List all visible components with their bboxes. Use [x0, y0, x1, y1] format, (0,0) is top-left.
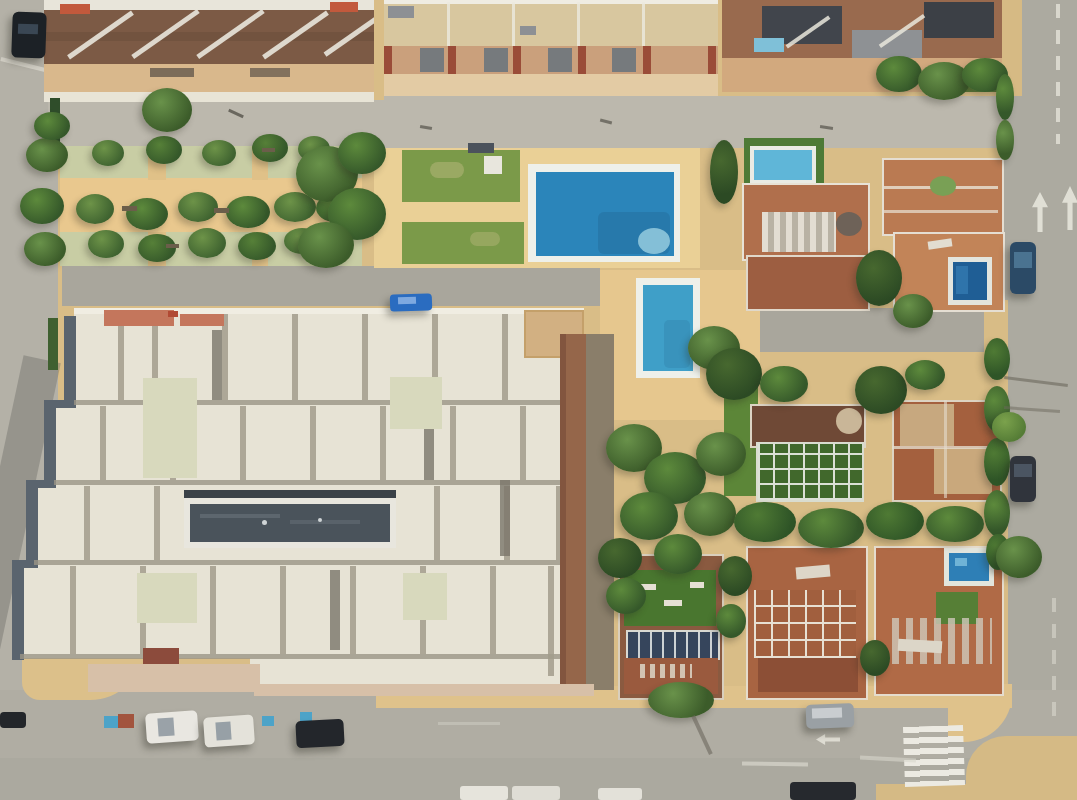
complex-front-sidewalk-right	[254, 684, 594, 696]
villa1-roof-lower	[746, 255, 870, 311]
villa3-white-arch	[836, 408, 862, 434]
villa1-west-trees	[710, 140, 738, 204]
block-b-brick-1	[384, 46, 392, 74]
villa2-pool-light	[956, 266, 968, 294]
block-b-glass-1	[420, 48, 444, 72]
deck-pool-shed	[484, 156, 502, 174]
car-dark-right	[1010, 456, 1036, 502]
garden-tree-mid-2	[126, 198, 168, 230]
row2-bottom-hedge-3	[866, 502, 924, 540]
block-b-ac-unit-1	[388, 6, 414, 18]
right-road-center-dash-top	[1056, 4, 1060, 144]
row3-tree-5	[860, 640, 890, 676]
block-b-lower-terrace	[384, 74, 718, 96]
roof-block-shadow-3	[330, 570, 340, 650]
block-a-terrace-window-2	[250, 68, 290, 77]
roof-seam-v-d3	[210, 566, 216, 654]
villa7-pool-sparkle	[955, 558, 967, 566]
villa5-sunbeds	[640, 664, 692, 678]
roof-seam-v-d1	[70, 566, 76, 654]
walkway-palm-6	[654, 534, 702, 574]
roof-seam-v-a1	[118, 314, 124, 400]
right-hedge-1	[984, 338, 1010, 380]
main-pool-steps	[638, 228, 670, 254]
top-road	[48, 96, 1010, 148]
block-b-brick-6	[708, 46, 716, 74]
villa4-rail-v	[944, 400, 947, 498]
complex-step-shadow-1	[44, 400, 66, 408]
car-white-bottom-2	[512, 786, 560, 800]
garden-tree-top-3	[202, 140, 236, 166]
block-a-parapet	[44, 92, 374, 102]
car-black-topleft-glass	[18, 24, 38, 35]
car-blue-right-glass	[1014, 252, 1032, 268]
block-c-roof-pool-tarp	[754, 38, 784, 52]
block-c-hedge-2	[996, 120, 1014, 160]
block-b-divider-3	[577, 2, 580, 46]
car-black-1	[295, 719, 344, 748]
roof-block-shadow-1	[212, 330, 222, 400]
row3-tree-1	[598, 538, 642, 578]
walkway-palm-3	[696, 432, 746, 476]
block-b-brick-4	[578, 46, 586, 74]
complex-salmon-roof-1	[104, 310, 174, 326]
car-dark-bottom	[790, 782, 856, 800]
complex-east-facade-shade	[560, 334, 566, 690]
roof-seam-v-b3	[240, 406, 246, 480]
deck-solar-panel	[468, 143, 494, 153]
complex-hedge-west	[48, 318, 58, 370]
roof-seam-v-a4	[292, 314, 298, 400]
hedge-above-villa2-1	[876, 56, 922, 92]
row2-tree-3	[855, 366, 907, 414]
block-b-glass-2	[484, 48, 508, 72]
garden-tree-bot-2	[138, 234, 176, 262]
right-hedge-4	[984, 490, 1010, 536]
row3-tree-3	[718, 556, 752, 596]
block-b-ac-unit-2	[520, 26, 536, 35]
lawn-upper-worn-patch	[430, 162, 464, 178]
villa7-loungers	[898, 639, 943, 653]
right-sidewalk-palm	[992, 412, 1026, 442]
complex-front-sidewalk	[88, 664, 260, 692]
roof-seam-v-c1	[84, 486, 90, 560]
car-black-topleft	[11, 11, 47, 58]
courtyard-glass-streak-2	[290, 520, 360, 524]
block-a-terrace-band	[44, 64, 374, 92]
roof-seam-v-d4	[280, 566, 286, 654]
junction-palm	[996, 536, 1042, 578]
roadside-palm-2	[20, 188, 64, 224]
row2-tree-2	[760, 366, 808, 402]
sage-roof-panel-2	[390, 377, 442, 429]
roof-seam-v-b6	[450, 406, 456, 480]
villas-alley	[722, 308, 1008, 352]
row2-bottom-hedge-4	[926, 506, 984, 542]
second-pool-shade	[664, 320, 690, 368]
block-b-rooftop	[384, 0, 718, 46]
overhang-palm-topleft	[142, 88, 192, 132]
block-b-divider-1	[447, 2, 450, 46]
right-road	[1002, 0, 1077, 800]
garden-tree-bot-1	[88, 230, 124, 258]
courtyard-skylight-dot-1	[262, 520, 267, 525]
roadside-palm-3	[24, 232, 66, 266]
roof-seam-v-c2	[154, 486, 160, 560]
villa2-railing-2	[884, 210, 998, 213]
roof-seam-h4	[20, 654, 584, 659]
garden-tree-bot-4	[238, 232, 276, 260]
roof-seam-v-c3	[434, 486, 440, 560]
courtyard-skylight-dot-2	[318, 518, 322, 522]
garden-palm-cluster-4	[338, 132, 386, 174]
car-white-bottom-1	[460, 786, 508, 800]
roof-block-shadow-4	[500, 480, 510, 556]
villa3-turf-court	[756, 442, 864, 502]
block-b-glass-3	[548, 48, 572, 72]
roof-seam-v-d7	[490, 566, 496, 654]
block-c-hedge-1	[996, 74, 1014, 120]
block-a-terrace-window-1	[150, 68, 194, 77]
complex-west-shadow-1	[64, 316, 76, 408]
lawn-lower	[402, 222, 524, 264]
complex-west-shadow-4	[12, 562, 24, 660]
row2-tree-4	[905, 360, 945, 390]
row2-bottom-hedge-1	[734, 502, 796, 542]
right-road-center-dash-bottom	[1052, 598, 1056, 728]
roof-seam-h3	[34, 560, 584, 565]
villa2-green-table	[930, 176, 956, 196]
garden-bench-4	[262, 148, 275, 152]
villa1-jacuzzi	[836, 212, 862, 236]
parking-red-kiosk	[118, 714, 134, 728]
block-b-divider-4	[642, 2, 645, 46]
car-blue-right	[1010, 242, 1036, 294]
roadside-palm-4	[34, 112, 70, 140]
villa4-light-roof-2	[934, 448, 992, 494]
complex-red-vent	[168, 311, 178, 317]
block-a-chimney-1	[60, 4, 90, 14]
block-gap-1	[374, 0, 384, 100]
block-c-gray-roof	[852, 30, 922, 58]
bottomroad-palm	[648, 682, 714, 718]
crosswalk-zebra	[903, 725, 965, 787]
car-white-2-glass	[215, 721, 231, 740]
courtyard-glass-streak-1	[200, 514, 280, 518]
complex-salmon-roof-2	[180, 314, 224, 326]
villa2-palm	[893, 294, 933, 328]
parking-blue-mark-1	[104, 716, 118, 728]
car-dark-left-edge	[0, 712, 26, 728]
villa6-lower-terrace	[758, 658, 858, 692]
block-b-brick-3	[513, 46, 521, 74]
bottom-road-dash-3	[438, 722, 500, 725]
garden-tree-mid-4	[226, 196, 270, 228]
block-b-brick-2	[448, 46, 456, 74]
garden-tree-top-2	[146, 136, 182, 164]
block-b-brick-5	[643, 46, 651, 74]
row2-bottom-hedge-2	[798, 508, 864, 548]
roof-seam-v-b5	[380, 406, 386, 480]
roof-block-shadow-2	[424, 420, 434, 480]
lawn-lower-worn-patch	[470, 232, 500, 246]
block-b-white-edge	[384, 0, 718, 4]
tree-between-villas12	[856, 250, 902, 306]
sage-roof-panel-1	[143, 378, 197, 478]
roof-seam-v-b4	[310, 406, 316, 480]
roof-seam-v-d5	[350, 566, 356, 654]
roof-seam-v-d8	[548, 566, 554, 676]
garden-tree-bot-3	[188, 228, 226, 258]
mid-road	[62, 266, 600, 306]
aerial-photo	[0, 0, 1077, 800]
block-a-chimney-2	[330, 2, 358, 12]
garden-bench-3	[166, 244, 179, 248]
garden-tree-mid-3	[178, 192, 218, 222]
garden-tree-top-1	[92, 140, 124, 166]
complex-step-shadow-2	[26, 480, 46, 488]
block-c-dark-panel-2	[924, 2, 994, 38]
walkway-palm-4	[620, 492, 678, 540]
roof-seam-v-b1	[100, 406, 106, 480]
row3-tree-2	[606, 578, 646, 614]
roadside-palm-1	[26, 138, 68, 172]
garden-bench-1	[122, 206, 137, 211]
roof-seam-v-b7	[520, 406, 526, 480]
white-complex-roof-2	[54, 402, 584, 484]
villa1-pergola	[762, 212, 836, 252]
block-b-glass-4	[612, 48, 636, 72]
villa6-rail-grid	[754, 590, 856, 658]
roof-seam-v-a3	[222, 314, 228, 400]
complex-west-shadow-2	[44, 402, 56, 488]
block-b-divider-2	[512, 2, 515, 46]
parking-blue-mark-2	[262, 716, 274, 726]
roof-seam-v-a7	[502, 314, 508, 400]
car-white-bottom-3	[598, 788, 642, 800]
villa5-solar-panels	[626, 630, 720, 660]
villa5-furniture-2	[664, 600, 682, 606]
car-silver-mid-glass	[812, 707, 842, 718]
complex-west-shadow-3	[26, 482, 38, 568]
garden-palm-cluster-3	[298, 222, 354, 268]
villa5-furniture-3	[690, 582, 704, 588]
garden-tree-mid-1	[76, 194, 114, 224]
complex-east-walkway	[586, 334, 614, 690]
garden-bench-2	[214, 208, 229, 213]
sage-roof-panel-3	[137, 573, 197, 623]
hedge-above-villa2-2	[918, 62, 970, 100]
midroad-blue-car-glint	[398, 297, 416, 305]
row3-tree-4	[716, 604, 746, 638]
villa1-pool	[754, 150, 812, 180]
car-dark-right-glass	[1014, 464, 1032, 477]
sage-roof-panel-4	[403, 573, 447, 620]
villa2-terrace-upper	[882, 158, 1004, 236]
car-white-1-glass	[157, 717, 174, 736]
walkway-palm-5	[684, 492, 736, 536]
right-hedge-3	[984, 438, 1010, 486]
row2-tree-1	[706, 348, 762, 400]
complex-step-shadow-3	[12, 560, 28, 568]
roof-seam-v-a5	[362, 314, 368, 400]
